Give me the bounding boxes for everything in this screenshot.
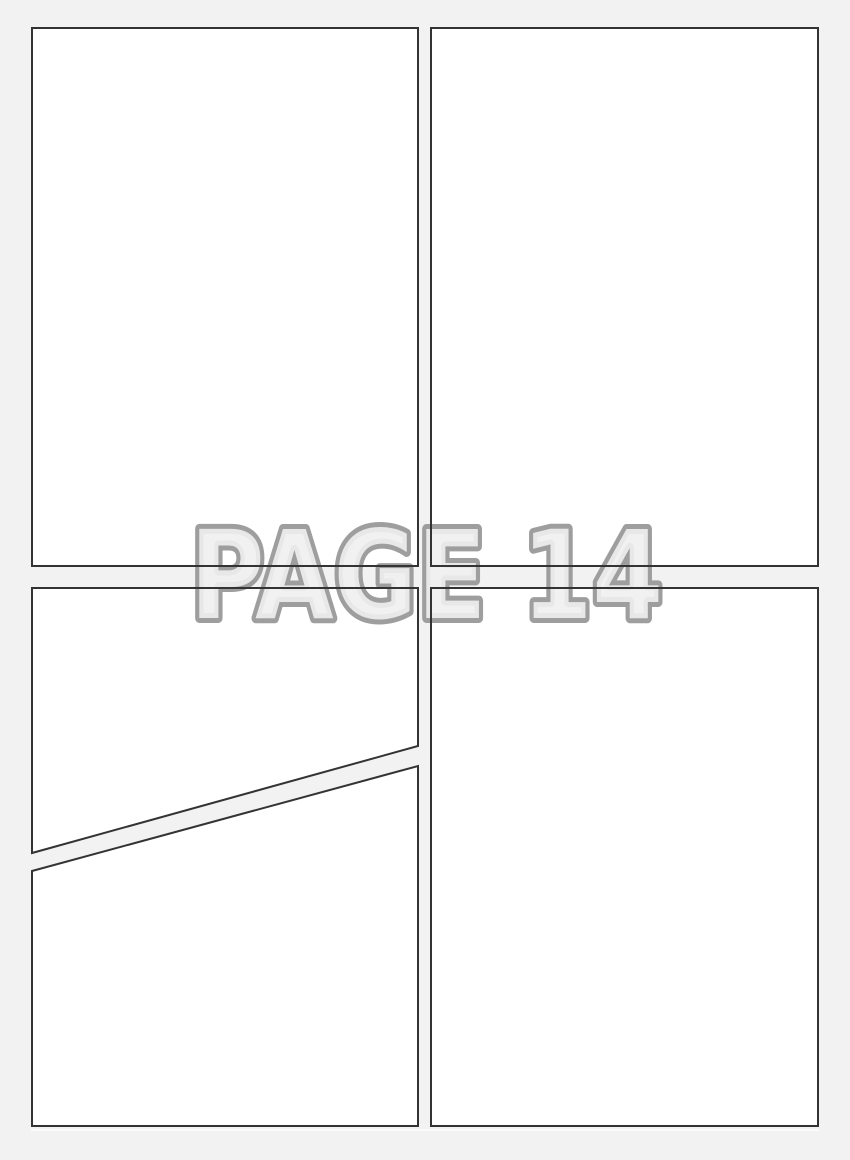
page-number-watermark: PAGE 14 [190,505,663,647]
panel-top-right [431,28,818,566]
panel-bottom-right [431,588,818,1126]
comic-page-canvas: PAGE 14 [0,0,850,1160]
comic-template-page: PAGE 14 [0,0,850,1160]
panel-top-left [32,28,418,566]
